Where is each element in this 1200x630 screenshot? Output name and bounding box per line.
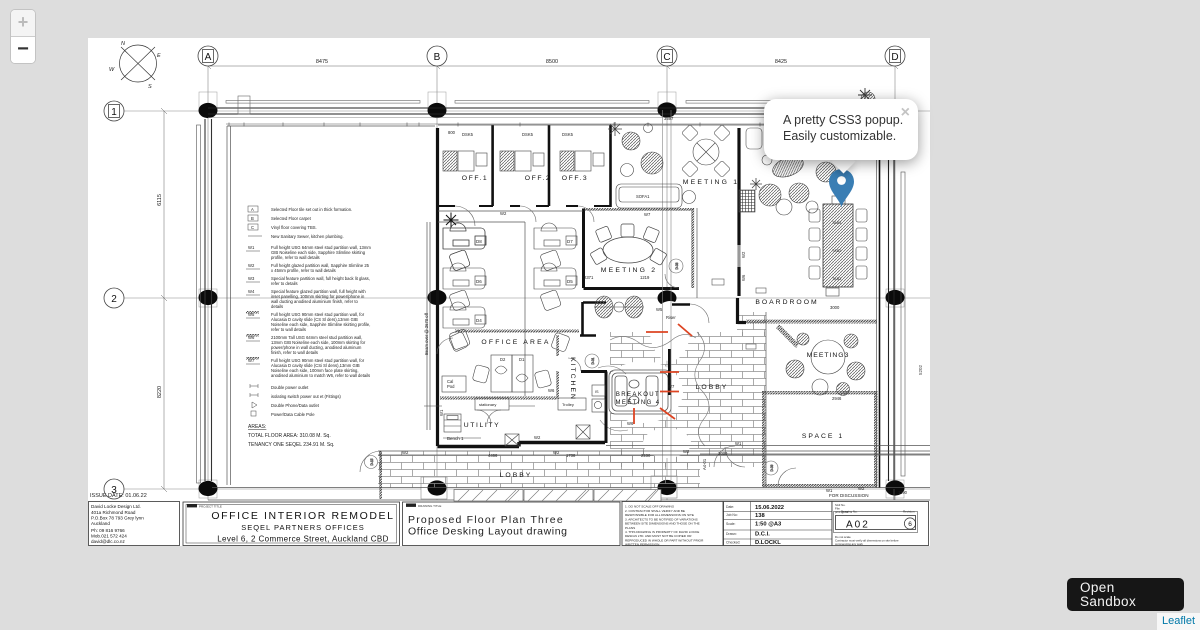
svg-text:Beam over @ 2670 off: Beam over @ 2670 off [424, 312, 429, 355]
svg-text:C: C [251, 225, 254, 230]
svg-text:David Locke Design Ltd.: David Locke Design Ltd. [91, 504, 141, 509]
svg-text:A: A [205, 52, 212, 63]
svg-text:Riser: Riser [666, 315, 676, 320]
svg-text:D8: D8 [476, 239, 482, 244]
svg-text:5202: 5202 [918, 364, 923, 375]
svg-text:OFF.3: OFF.3 [562, 175, 589, 182]
svg-text:D: D [891, 52, 898, 63]
svg-text:Ph: 09 816 9766: Ph: 09 816 9766 [91, 528, 125, 533]
svg-text:Auckland: Auckland [91, 521, 110, 526]
svg-text:DSK5: DSK5 [522, 132, 534, 137]
svg-text:Trolley: Trolley [562, 402, 574, 407]
svg-text:anodised aluminium to match W6: anodised aluminium to match W6, refer to… [271, 373, 370, 378]
svg-text:W2: W2 [741, 251, 746, 258]
svg-text:W3: W3 [248, 276, 255, 281]
svg-text:138: 138 [755, 513, 765, 519]
svg-text:Pod: Pod [447, 384, 455, 389]
svg-text:MEETING 4: MEETING 4 [616, 400, 661, 406]
svg-text:details: details [271, 304, 283, 309]
svg-text:8500: 8500 [546, 59, 558, 65]
svg-text:W: W [109, 67, 115, 73]
svg-text:B: B [251, 216, 254, 221]
svg-text:BREAKOUT: BREAKOUT [616, 392, 660, 398]
svg-text:3000: 3000 [830, 305, 840, 310]
svg-text:6115: 6115 [157, 194, 163, 206]
svg-text:Mob.021 572 424: Mob.021 572 424 [91, 534, 127, 539]
svg-text:Job No:: Job No: [726, 513, 738, 517]
svg-text:Double power outlet: Double power outlet [271, 385, 309, 390]
svg-text:Selected Floor tile set out in: Selected Floor tile set out in thick for… [271, 207, 352, 212]
svg-text:FOR DISCUSSION: FOR DISCUSSION [829, 493, 869, 498]
svg-text:6: 6 [908, 521, 912, 528]
svg-text:Date:: Date: [726, 505, 734, 509]
svg-text:D7: D7 [567, 239, 573, 244]
svg-text:15.06.2022: 15.06.2022 [755, 505, 784, 511]
svg-text:Power/Data Cable Pole: Power/Data Cable Pole [271, 412, 315, 417]
svg-text:W1: W1 [735, 441, 742, 446]
svg-text:UTILITY: UTILITY [464, 422, 501, 429]
svg-text:A4-01: A4-01 [702, 458, 707, 470]
svg-text:Vinyl floor covering TBS.: Vinyl floor covering TBS. [271, 225, 317, 230]
svg-text:D-09: D-09 [770, 464, 774, 471]
svg-text:B: B [434, 52, 441, 63]
svg-text:D5: D5 [567, 279, 573, 284]
svg-text:D1: D1 [519, 357, 525, 362]
svg-text:LOBBY: LOBBY [696, 384, 729, 391]
svg-text:W6: W6 [548, 388, 555, 393]
svg-text:4466: 4466 [488, 453, 498, 458]
svg-text:A: A [251, 207, 254, 212]
svg-text:D4: D4 [476, 318, 482, 323]
svg-text:D-01: D-01 [591, 357, 595, 364]
svg-text:1738: 1738 [566, 453, 576, 458]
svg-text:SEQEL PARTNERS OFFICES: SEQEL PARTNERS OFFICES [241, 523, 365, 532]
svg-text:W2: W2 [402, 450, 409, 455]
svg-text:1190: 1190 [898, 490, 908, 495]
svg-text:W4: W4 [248, 289, 255, 294]
svg-text:Selected Floor carpet: Selected Floor carpet [271, 216, 312, 221]
svg-text:New Sanitary Sewer, kitchen pl: New Sanitary Sewer, kitchen plumbing. [271, 234, 344, 239]
svg-text:W7: W7 [668, 384, 675, 389]
svg-text:OFF.2: OFF.2 [525, 175, 552, 182]
svg-text:TENANCY ONE SEQEL 234.91 M.: TENANCY ONE SEQEL 234.91 M. Sq. [248, 442, 334, 448]
svg-text:S: S [148, 84, 152, 90]
svg-text:AREAS:: AREAS: [248, 424, 266, 430]
svg-text:MEETING 1: MEETING 1 [683, 179, 739, 186]
svg-text:P.O.Box 78 793 Grey lynn: P.O.Box 78 793 Grey lynn [91, 516, 144, 521]
svg-text:D-15: D-15 [370, 458, 374, 465]
svg-text:1:50 @A3: 1:50 @A3 [755, 522, 782, 528]
svg-text:Bench 1: Bench 1 [447, 436, 464, 441]
svg-text:finish, refer to wall details: finish, refer to wall details [271, 350, 318, 355]
svg-text:IS: IS [595, 390, 599, 394]
svg-text:refer to details: refer to details [271, 281, 298, 286]
svg-text:TAB3: TAB3 [832, 277, 841, 281]
svg-text:Double Phone/Data outlet: Double Phone/Data outlet [271, 403, 320, 408]
svg-text:x 45mm profile, refer to wall: x 45mm profile, refer to wall details [271, 268, 336, 273]
svg-text:MEETING3: MEETING3 [807, 352, 850, 359]
svg-text:stationary: stationary [479, 402, 496, 407]
svg-text:DSK5: DSK5 [462, 132, 474, 137]
svg-text:3597: 3597 [664, 116, 674, 121]
svg-text:W6: W6 [627, 421, 634, 426]
svg-text:W5: W5 [656, 307, 663, 312]
svg-text:W7: W7 [644, 212, 651, 217]
svg-text:W2: W2 [683, 449, 690, 454]
svg-text:refer to wall details: refer to wall details [271, 327, 306, 332]
svg-text:KITCHEN: KITCHEN [569, 357, 576, 401]
svg-text:2946: 2946 [832, 396, 842, 401]
svg-text:SPACE 1: SPACE 1 [802, 433, 844, 440]
svg-text:W1: W1 [439, 409, 444, 416]
svg-text:W2: W2 [858, 486, 865, 491]
svg-text:1. DO NOT SCALE OFF DRAWING: 1. DO NOT SCALE OFF DRAWING [625, 505, 675, 509]
svg-text:DSK5: DSK5 [562, 132, 574, 137]
svg-text:LOBBY: LOBBY [500, 472, 533, 479]
svg-text:DRAWING TITLE: DRAWING TITLE [418, 504, 441, 508]
svg-text:W2: W2 [534, 435, 541, 440]
svg-text:commencing any work: commencing any work [835, 542, 863, 546]
svg-text:E: E [157, 53, 161, 59]
svg-text:W2: W2 [553, 450, 560, 455]
svg-text:BOARDROOM: BOARDROOM [755, 299, 818, 306]
svg-text:A02: A02 [846, 520, 870, 531]
svg-text:Drawn:: Drawn: [726, 532, 737, 536]
svg-text:W2: W2 [500, 211, 507, 216]
svg-text:D-03: D-03 [675, 262, 679, 269]
svg-text:W1: W1 [248, 245, 255, 250]
svg-text:D.C.I.: D.C.I. [755, 532, 770, 538]
svg-text:profile, refer to wall details: profile, refer to wall details [271, 255, 320, 260]
svg-text:W2: W2 [248, 263, 255, 268]
svg-text:C: C [663, 52, 670, 63]
svg-text:D.LOCKL: D.LOCKL [755, 540, 781, 546]
svg-text:isolating switch power out et: isolating switch power out et (Fittings) [271, 394, 341, 399]
svg-text:wall ducting anodised aluminiu: wall ducting anodised aluminium finish, … [271, 299, 358, 304]
svg-text:401a Richmond Road: 401a Richmond Road [91, 510, 136, 515]
svg-text:1: 1 [111, 107, 117, 118]
svg-text:Checked:: Checked: [726, 541, 740, 545]
svg-text:D6: D6 [476, 279, 482, 284]
svg-text:OFFICE INTERIOR REMODEL: OFFICE INTERIOR REMODEL [211, 510, 394, 522]
svg-text:2371: 2371 [584, 275, 594, 280]
svg-text:PROJECT TITLE: PROJECT TITLE [199, 505, 222, 509]
svg-text:Scale:: Scale: [726, 522, 735, 526]
svg-text:TAB2: TAB2 [832, 249, 841, 253]
svg-text:W6: W6 [741, 274, 746, 281]
svg-text:N: N [121, 41, 125, 47]
svg-text:TOTAL FLOOR AREA: 310.08 M.: TOTAL FLOOR AREA: 310.08 M. Sq. [248, 433, 331, 439]
svg-text:D2: D2 [500, 357, 506, 362]
svg-text:8475: 8475 [316, 59, 328, 65]
svg-text:WRITTEN PERMISSION: WRITTEN PERMISSION [625, 542, 659, 546]
svg-text:8425: 8425 [775, 59, 787, 65]
svg-text:Proposed Floor Plan Three: Proposed Floor Plan Three [408, 514, 564, 526]
svg-text:3030: 3030 [718, 451, 728, 456]
svg-text:david@dlc.co.nz: david@dlc.co.nz [91, 539, 125, 544]
svg-text:ISSUE DATE: 01.06.22: ISSUE DATE: 01.06.22 [90, 493, 147, 499]
svg-text:800: 800 [448, 130, 456, 135]
svg-text:8220: 8220 [157, 386, 163, 398]
svg-text:1219: 1219 [640, 275, 650, 280]
svg-text:2230: 2230 [641, 453, 651, 458]
svg-text:BETWEEN SITE DIMENSIONS AND TH: BETWEEN SITE DIMENSIONS AND THOSE ON THE [625, 522, 700, 526]
svg-text:Level 6, 2 Commerce Street: Level 6, 2 Commerce Street, Auckland CBD [217, 535, 389, 544]
svg-text:Office Desking Layout drawi: Office Desking Layout drawing [408, 526, 568, 538]
svg-text:OFFICE AREA: OFFICE AREA [481, 339, 550, 346]
svg-text:SOFA1: SOFA1 [636, 194, 650, 199]
svg-text:2: 2 [111, 294, 117, 305]
svg-text:OFF.1: OFF.1 [462, 175, 489, 182]
svg-text:TAB3: TAB3 [832, 221, 841, 225]
svg-text:MEETING 2: MEETING 2 [601, 267, 657, 274]
